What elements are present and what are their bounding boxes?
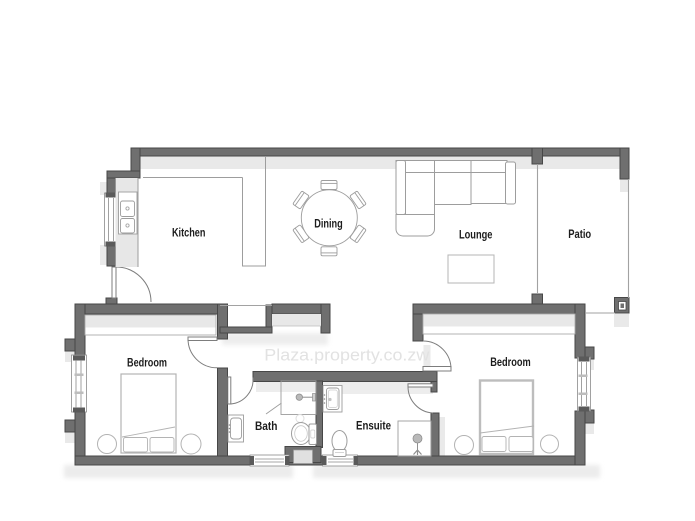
svg-text:Kitchen: Kitchen [172, 226, 206, 240]
svg-text:Bedroom: Bedroom [490, 355, 531, 369]
svg-text:Dining: Dining [314, 216, 343, 230]
svg-text:Bedroom: Bedroom [127, 356, 167, 370]
svg-text:Plaza.property.co.zw: Plaza.property.co.zw [264, 346, 430, 365]
svg-text:Bath: Bath [255, 419, 278, 433]
svg-text:Patio: Patio [568, 227, 591, 241]
svg-text:Lounge: Lounge [459, 227, 493, 241]
svg-text:Ensuite: Ensuite [356, 419, 391, 433]
